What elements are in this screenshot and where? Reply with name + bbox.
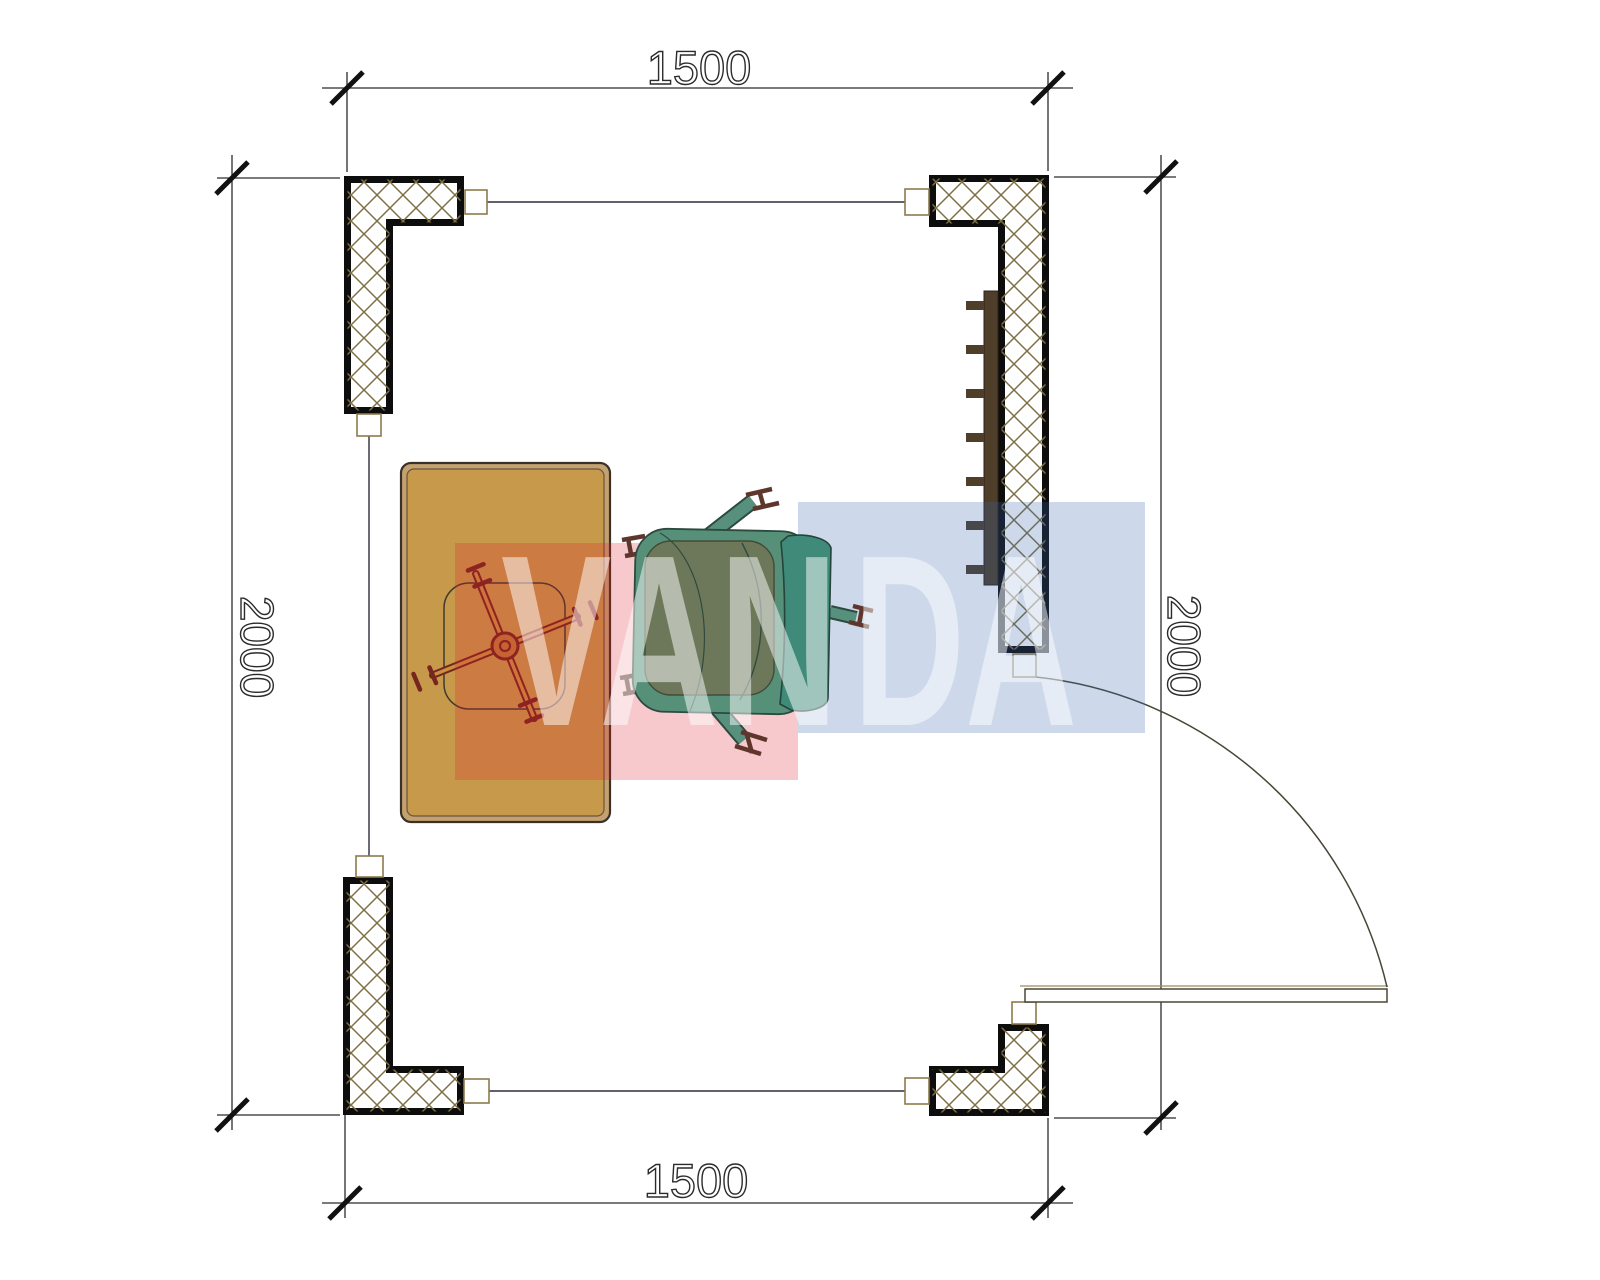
svg-text:VAN: VAN (501, 505, 838, 778)
svg-text:1500: 1500 (647, 41, 752, 94)
svg-text:DA: DA (853, 505, 1077, 777)
svg-text:2000: 2000 (1158, 595, 1210, 697)
svg-text:1500: 1500 (644, 1154, 749, 1207)
svg-text:2000: 2000 (231, 596, 283, 698)
